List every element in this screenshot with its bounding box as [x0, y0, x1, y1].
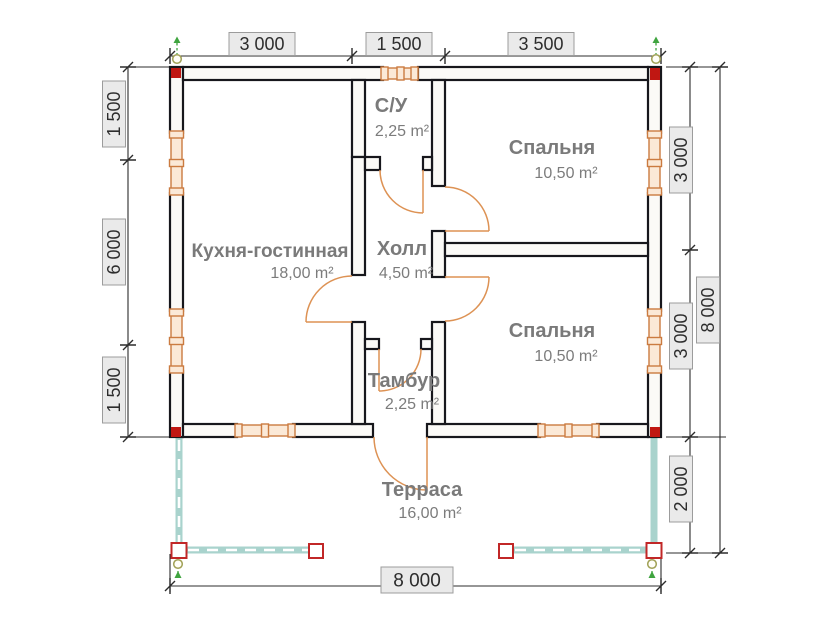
svg-text:С/У: С/У — [375, 95, 408, 117]
svg-text:18,00 m²: 18,00 m² — [270, 265, 334, 282]
terrace-post — [172, 543, 187, 558]
window-icon — [170, 309, 184, 373]
svg-text:2,25 m²: 2,25 m² — [385, 396, 440, 413]
doors-group — [306, 170, 489, 490]
svg-text:2,25 m²: 2,25 m² — [375, 123, 430, 140]
svg-text:3 500: 3 500 — [518, 34, 563, 54]
svg-text:3 000: 3 000 — [671, 137, 691, 182]
svg-text:4,50 m²: 4,50 m² — [379, 265, 434, 282]
svg-text:8 000: 8 000 — [698, 287, 718, 332]
window-icon — [170, 131, 184, 195]
window-icon — [235, 424, 295, 437]
dim-label-top-1: 3 000 — [229, 33, 295, 56]
svg-text:Холл: Холл — [377, 238, 427, 260]
corner-marker — [650, 68, 660, 80]
svg-text:8 000: 8 000 — [393, 571, 441, 592]
svg-text:1 500: 1 500 — [376, 34, 421, 54]
dim-label-left-2: 6 000 — [103, 219, 126, 285]
dim-label-bottom: 8 000 — [381, 567, 453, 593]
door-arc-kitchen — [306, 276, 352, 322]
dim-label-top-2: 1 500 — [366, 33, 432, 56]
svg-text:16,00 m²: 16,00 m² — [398, 505, 462, 522]
floor-plan-canvas: 3 000 1 500 3 500 1 500 6 000 1 500 3 00… — [0, 0, 830, 622]
door-arc-bedroom2 — [445, 277, 489, 321]
dim-label-right-1: 3 000 — [670, 127, 693, 193]
floor-plan-page: 3 000 1 500 3 500 1 500 6 000 1 500 3 00… — [0, 0, 830, 622]
svg-text:3 000: 3 000 — [239, 34, 284, 54]
window-icon — [648, 309, 662, 373]
node-circle — [174, 560, 183, 569]
svg-text:Тамбур: Тамбур — [368, 370, 441, 392]
dim-label-right-outer: 8 000 — [697, 277, 720, 343]
svg-text:10,50 m²: 10,50 m² — [534, 165, 598, 182]
svg-text:Спальня: Спальня — [509, 320, 595, 342]
door-arc-bedroom1 — [445, 187, 489, 231]
window-icon — [381, 67, 418, 80]
room-label-tambur: Тамбур 2,25 m² — [368, 370, 441, 413]
corner-marker — [650, 427, 660, 437]
node-circle — [652, 55, 661, 64]
svg-text:Кухня-гостинная: Кухня-гостинная — [191, 241, 348, 262]
window-icon — [648, 131, 662, 195]
dim-label-top-3: 3 500 — [508, 33, 574, 56]
svg-text:6 000: 6 000 — [104, 229, 124, 274]
terrace-post — [647, 543, 662, 558]
room-label-bedroom1: Спальня 10,50 m² — [509, 137, 598, 182]
dim-label-right-2: 3 000 — [670, 303, 693, 369]
window-icon — [538, 424, 599, 437]
svg-text:2 000: 2 000 — [671, 466, 691, 511]
terrace-post — [309, 544, 323, 558]
node-circle — [173, 55, 182, 64]
room-labels: С/У 2,25 m² Спальня 10,50 m² Кухня-гости… — [191, 95, 598, 522]
dim-label-left-1: 1 500 — [103, 81, 126, 147]
room-label-su: С/У 2,25 m² — [375, 95, 430, 140]
svg-text:3 000: 3 000 — [671, 313, 691, 358]
room-label-terrace: Терраса 16,00 m² — [382, 479, 463, 522]
svg-text:Спальня: Спальня — [509, 137, 595, 159]
door-arc-su — [380, 170, 423, 213]
svg-text:10,50 m²: 10,50 m² — [534, 348, 598, 365]
corner-marker — [171, 68, 181, 78]
corner-marker — [171, 427, 181, 437]
terrace-post — [499, 544, 513, 558]
room-label-hall: Холл 4,50 m² — [377, 238, 434, 282]
room-label-kitchen: Кухня-гостинная 18,00 m² — [191, 241, 348, 282]
room-label-bedroom2: Спальня 10,50 m² — [509, 320, 598, 365]
dim-label-right-3: 2 000 — [670, 456, 693, 522]
dim-label-left-3: 1 500 — [103, 357, 126, 423]
node-circle — [648, 560, 657, 569]
svg-text:1 500: 1 500 — [104, 91, 124, 136]
svg-text:Терраса: Терраса — [382, 479, 463, 501]
svg-text:1 500: 1 500 — [104, 367, 124, 412]
